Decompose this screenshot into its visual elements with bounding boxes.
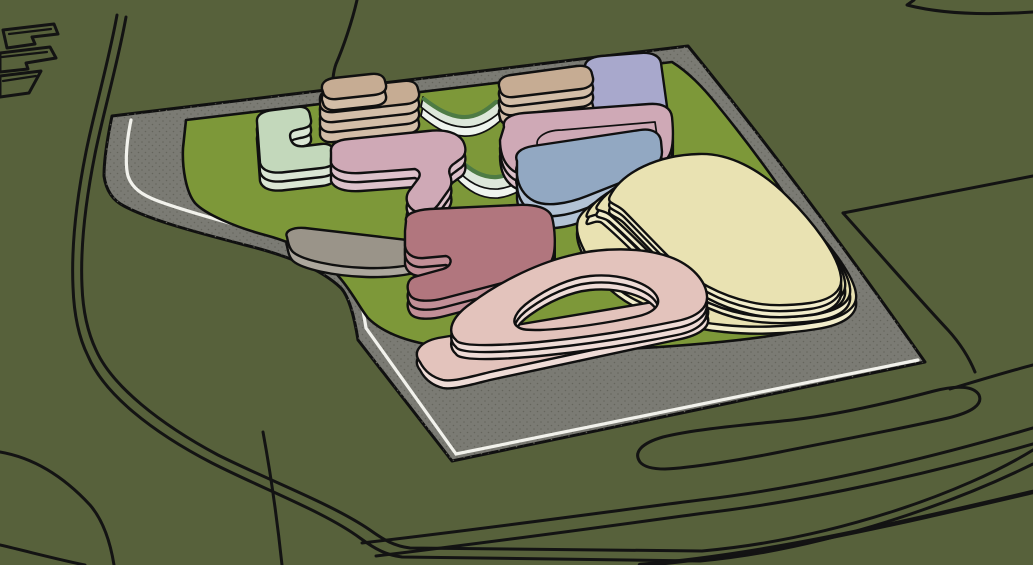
site-model-canvas[interactable] [0, 0, 1033, 565]
north-bar-penthouse-roof [322, 74, 386, 99]
model-viewport[interactable] [0, 0, 1033, 565]
building-north-bar [320, 74, 419, 142]
